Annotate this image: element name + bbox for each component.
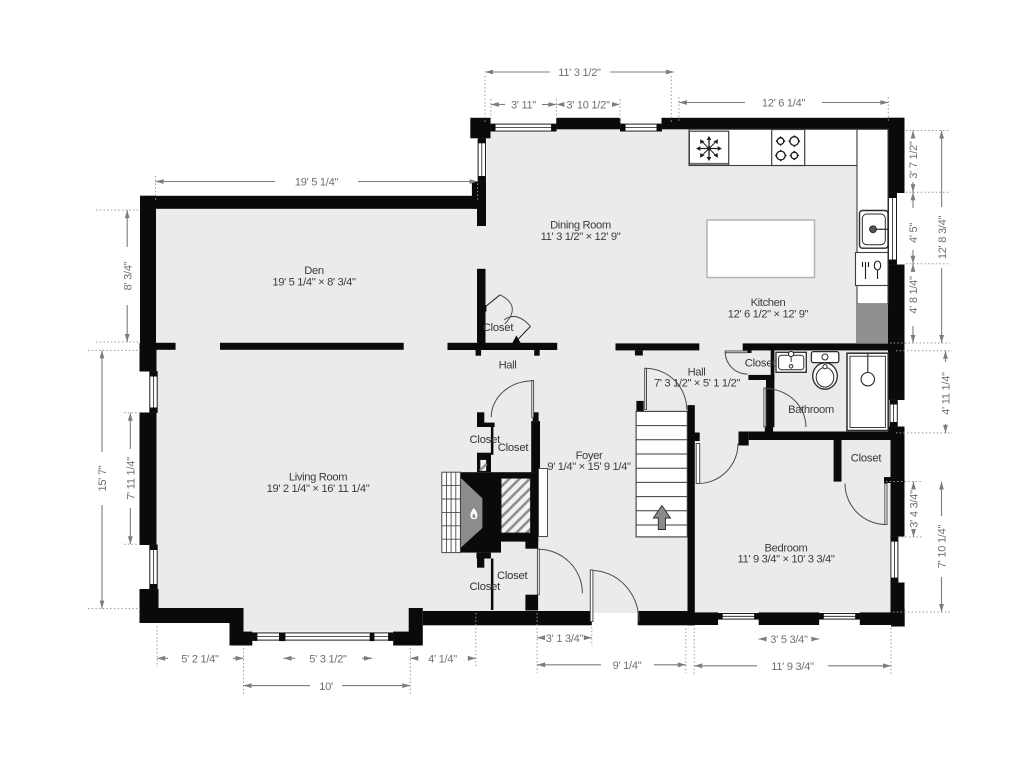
- svg-text:12' 6 1/2" × 12' 9": 12' 6 1/2" × 12' 9": [728, 308, 809, 320]
- svg-text:15' 7": 15' 7": [97, 465, 109, 491]
- svg-text:19' 5 1/4": 19' 5 1/4": [295, 177, 339, 189]
- svg-text:11' 9 3/4": 11' 9 3/4": [771, 661, 814, 673]
- svg-text:Closet: Closet: [470, 434, 502, 446]
- svg-text:8' 3/4": 8' 3/4": [122, 261, 134, 290]
- svg-text:Living Room: Living Room: [289, 472, 347, 484]
- svg-text:3' 11": 3' 11": [511, 100, 536, 112]
- svg-text:Dining Room: Dining Room: [550, 220, 611, 232]
- svg-text:12' 8 3/4": 12' 8 3/4": [937, 216, 949, 260]
- svg-text:9' 1/4" × 15' 9 1/4": 9' 1/4" × 15' 9 1/4": [547, 461, 631, 473]
- svg-text:7' 10 1/4": 7' 10 1/4": [937, 525, 949, 569]
- svg-text:Bathroom: Bathroom: [788, 404, 834, 416]
- svg-text:19' 2 1/4" × 16' 11 1/4": 19' 2 1/4" × 16' 11 1/4": [267, 483, 370, 495]
- svg-text:3' 1 3/4": 3' 1 3/4": [546, 633, 584, 645]
- svg-text:4' 8 1/4": 4' 8 1/4": [908, 276, 920, 314]
- svg-text:11' 3 1/2": 11' 3 1/2": [558, 67, 601, 79]
- svg-text:Hall: Hall: [499, 359, 517, 371]
- svg-text:4' 11 1/4": 4' 11 1/4": [941, 372, 953, 415]
- svg-text:3' 7 1/2": 3' 7 1/2": [908, 141, 920, 179]
- svg-text:Closet: Closet: [851, 452, 883, 464]
- svg-text:Closet: Closet: [745, 357, 777, 369]
- svg-text:Closet: Closet: [498, 442, 530, 454]
- svg-text:3' 4 3/4": 3' 4 3/4": [909, 490, 921, 528]
- svg-text:4' 1/4": 4' 1/4": [428, 654, 457, 666]
- svg-text:Kitchen: Kitchen: [751, 297, 786, 309]
- svg-text:7' 3 1/2" × 5' 1 1/2": 7' 3 1/2" × 5' 1 1/2": [654, 378, 740, 390]
- svg-text:7' 11 1/4": 7' 11 1/4": [126, 457, 138, 500]
- svg-text:Closet: Closet: [497, 570, 529, 582]
- svg-text:11' 9 3/4" × 10' 3 3/4": 11' 9 3/4" × 10' 3 3/4": [738, 554, 835, 566]
- svg-text:4' 5": 4' 5": [908, 223, 920, 243]
- svg-text:10': 10': [319, 681, 333, 693]
- svg-text:3' 5 3/4": 3' 5 3/4": [770, 634, 808, 646]
- svg-text:19' 5 1/4" × 8' 3/4": 19' 5 1/4" × 8' 3/4": [272, 276, 356, 288]
- svg-text:Den: Den: [304, 265, 324, 277]
- svg-text:Closet: Closet: [470, 581, 502, 593]
- svg-text:5' 2 1/4": 5' 2 1/4": [181, 654, 219, 666]
- svg-text:3' 10 1/2": 3' 10 1/2": [566, 100, 610, 112]
- svg-text:Closet: Closet: [483, 322, 515, 334]
- svg-text:12' 6 1/4": 12' 6 1/4": [762, 98, 806, 110]
- svg-text:9' 1/4": 9' 1/4": [613, 660, 642, 672]
- svg-text:5' 3 1/2": 5' 3 1/2": [309, 654, 347, 666]
- svg-text:11' 3 1/2" × 12' 9": 11' 3 1/2" × 12' 9": [541, 231, 621, 243]
